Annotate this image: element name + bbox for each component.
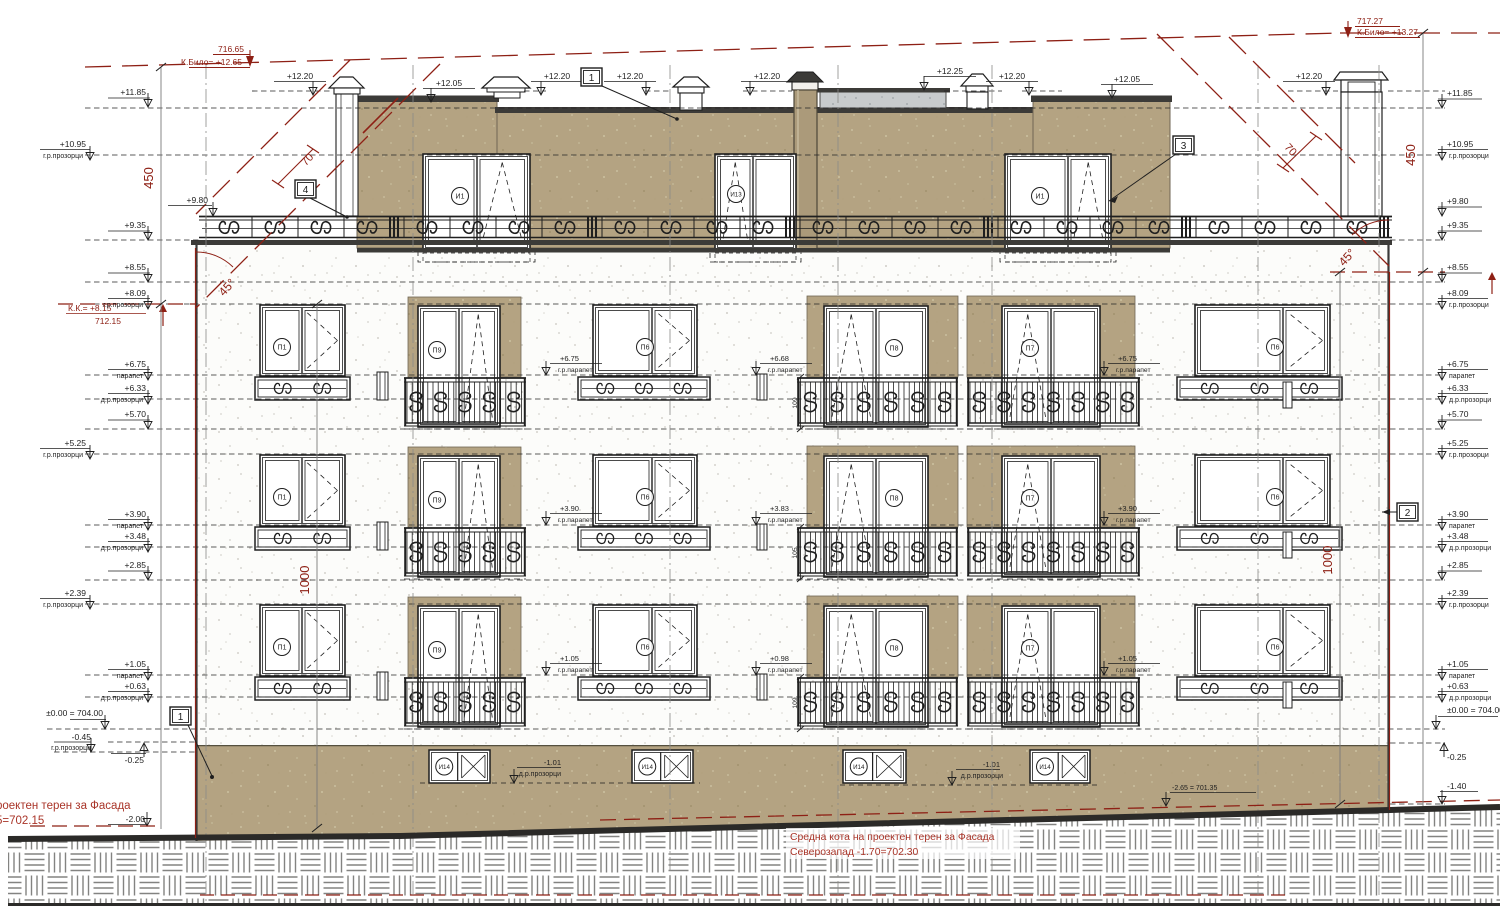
svg-text:П7: П7 xyxy=(1026,345,1035,352)
svg-text:г.р.прозорци: г.р.прозорци xyxy=(51,745,91,752)
svg-text:П1: П1 xyxy=(278,344,287,351)
svg-text:+5.25: +5.25 xyxy=(1447,438,1469,448)
svg-text:П8: П8 xyxy=(890,645,899,652)
svg-text:+6.68: +6.68 xyxy=(770,354,789,363)
svg-text:+6.75: +6.75 xyxy=(1447,359,1469,369)
svg-text:+3.90: +3.90 xyxy=(560,504,579,513)
svg-text:+0.63: +0.63 xyxy=(124,681,146,691)
svg-text:±0.00 = 704.00: ±0.00 = 704.00 xyxy=(1447,705,1500,715)
svg-text:+12.05: +12.05 xyxy=(1114,74,1141,84)
svg-text:г.р.прозорци: г.р.прозорци xyxy=(1449,302,1489,309)
svg-text:г.р.прозорци: г.р.прозорци xyxy=(43,153,83,160)
svg-text:105: 105 xyxy=(792,547,799,559)
svg-text:Средна кота на проектен терен: Средна кота на проектен терен за Фасада xyxy=(790,832,995,843)
svg-text:парапет: парапет xyxy=(1449,523,1476,530)
svg-text:+3.83: +3.83 xyxy=(770,504,789,513)
svg-text:г.р.прозорци: г.р.прозорци xyxy=(1449,153,1489,160)
svg-text:г.р.прозорци: г.р.прозорци xyxy=(43,452,83,459)
svg-text:П6: П6 xyxy=(1271,344,1280,351)
svg-text:И13: И13 xyxy=(730,191,742,198)
svg-text:1000: 1000 xyxy=(297,566,312,595)
svg-text:717.27: 717.27 xyxy=(1357,16,1383,26)
svg-text:+3.90: +3.90 xyxy=(1118,504,1137,513)
svg-text:-0.25: -0.25 xyxy=(1447,752,1467,762)
svg-text:+9.35: +9.35 xyxy=(124,220,146,230)
svg-text:+1.05: +1.05 xyxy=(1447,659,1469,669)
svg-text:И14: И14 xyxy=(642,764,654,771)
svg-text:+2.39: +2.39 xyxy=(1447,588,1469,598)
svg-text:П6: П6 xyxy=(1271,494,1280,501)
svg-text:П1: П1 xyxy=(278,494,287,501)
svg-text:-0.45: -0.45 xyxy=(72,732,92,742)
svg-text:П6: П6 xyxy=(641,344,650,351)
svg-text:+1.05: +1.05 xyxy=(124,659,146,669)
svg-text:450: 450 xyxy=(1403,144,1418,166)
svg-text:+1.05: +1.05 xyxy=(560,654,579,663)
svg-text:1: 1 xyxy=(178,712,184,723)
svg-text:г.р.прозорци: г.р.прозорци xyxy=(1449,602,1489,609)
svg-text:3: 3 xyxy=(1181,141,1187,152)
svg-text:г.р.парапет: г.р.парапет xyxy=(558,667,593,674)
svg-text:П9: П9 xyxy=(433,497,442,504)
svg-text:П8: П8 xyxy=(890,495,899,502)
svg-text:716.65: 716.65 xyxy=(218,44,244,54)
svg-text:г.р.прозорци: г.р.прозорци xyxy=(1449,452,1489,459)
svg-text:-1.01: -1.01 xyxy=(983,760,1000,769)
svg-text:±0.00 = 704.00: ±0.00 = 704.00 xyxy=(46,708,103,718)
svg-text:+8.55: +8.55 xyxy=(1447,262,1469,272)
svg-text:г.р.парапет: г.р.парапет xyxy=(768,667,803,674)
svg-text:г.р.парапет: г.р.парапет xyxy=(1116,367,1151,374)
svg-text:д.р.прозорци: д.р.прозорци xyxy=(1449,545,1491,552)
svg-text:-2.65 = 701.35: -2.65 = 701.35 xyxy=(1172,785,1217,792)
svg-text:г.р.прозорци: г.р.прозорци xyxy=(103,302,143,309)
svg-text:И1: И1 xyxy=(456,193,465,200)
svg-text:+6.75: +6.75 xyxy=(1118,354,1137,363)
svg-text:-1.40: -1.40 xyxy=(1447,781,1467,791)
svg-text:К.Било= +12.65: К.Било= +12.65 xyxy=(181,57,242,67)
svg-text:+6.75: +6.75 xyxy=(560,354,579,363)
svg-text:П9: П9 xyxy=(433,647,442,654)
svg-text:+12.20: +12.20 xyxy=(1296,71,1323,81)
svg-text:+9.80: +9.80 xyxy=(1447,196,1469,206)
svg-text:+3.90: +3.90 xyxy=(124,509,146,519)
svg-text:+11.85: +11.85 xyxy=(1447,88,1473,98)
svg-text:И1: И1 xyxy=(1036,193,1045,200)
svg-text:д.р.прозорци: д.р.прозорци xyxy=(1449,397,1491,404)
svg-text:парапет: парапет xyxy=(117,523,144,530)
svg-text:+3.90: +3.90 xyxy=(1447,509,1469,519)
svg-text:1: 1 xyxy=(589,73,595,84)
svg-text:+0.63: +0.63 xyxy=(1447,681,1469,691)
svg-text:П8: П8 xyxy=(890,345,899,352)
svg-text:+12.20: +12.20 xyxy=(617,71,644,81)
svg-text:-1.01: -1.01 xyxy=(544,758,561,767)
svg-text:5=702.15: 5=702.15 xyxy=(0,815,44,827)
svg-text:Северозапад -1.70=702.30: Северозапад -1.70=702.30 xyxy=(790,847,919,858)
svg-text:П6: П6 xyxy=(641,494,650,501)
svg-text:парапет: парапет xyxy=(1449,673,1476,680)
svg-text:д.р.прозорци: д.р.прозорци xyxy=(101,695,143,702)
svg-text:роектен терен за Фасада: роектен терен за Фасада xyxy=(0,800,131,812)
svg-text:109: 109 xyxy=(792,397,799,409)
svg-text:-2.00: -2.00 xyxy=(126,814,146,824)
svg-text:-0.25: -0.25 xyxy=(125,755,145,765)
svg-text:+8.09: +8.09 xyxy=(124,288,146,298)
svg-text:+8.55: +8.55 xyxy=(124,262,146,272)
svg-text:+6.33: +6.33 xyxy=(1447,383,1469,393)
svg-text:+12.25: +12.25 xyxy=(937,66,964,76)
svg-text:П7: П7 xyxy=(1026,495,1035,502)
svg-text:+12.20: +12.20 xyxy=(999,71,1026,81)
svg-text:парапет: парапет xyxy=(117,373,144,380)
svg-text:+0.98: +0.98 xyxy=(770,654,789,663)
svg-text:И14: И14 xyxy=(439,764,451,771)
svg-text:+5.70: +5.70 xyxy=(1447,409,1469,419)
svg-text:+2.85: +2.85 xyxy=(124,560,146,570)
svg-text:И14: И14 xyxy=(853,764,865,771)
svg-text:г.р.парапет: г.р.парапет xyxy=(768,517,803,524)
svg-text:г.р.парапет: г.р.парапет xyxy=(768,367,803,374)
svg-text:д.р.прозорци: д.р.прозорци xyxy=(519,771,561,778)
svg-text:+6.75: +6.75 xyxy=(124,359,146,369)
svg-text:г.р.парапет: г.р.парапет xyxy=(1116,667,1151,674)
svg-text:+9.80: +9.80 xyxy=(186,195,208,205)
svg-text:г.р.парапет: г.р.парапет xyxy=(1116,517,1151,524)
svg-text:+11.85: +11.85 xyxy=(120,87,146,97)
svg-text:+12.20: +12.20 xyxy=(544,71,571,81)
svg-text:П6: П6 xyxy=(641,644,650,651)
svg-text:+12.05: +12.05 xyxy=(436,78,463,88)
svg-text:г.р.парапет: г.р.парапет xyxy=(558,517,593,524)
svg-text:+9.35: +9.35 xyxy=(1447,220,1469,230)
svg-text:109: 109 xyxy=(792,697,799,709)
svg-text:+12.20: +12.20 xyxy=(287,71,314,81)
svg-text:парапет: парапет xyxy=(1449,373,1476,380)
svg-text:+10.95: +10.95 xyxy=(1447,139,1474,149)
svg-text:+2.85: +2.85 xyxy=(1447,560,1469,570)
svg-text:д.р.прозорци: д.р.прозорци xyxy=(961,773,1003,780)
svg-text:+5.70: +5.70 xyxy=(124,409,146,419)
svg-text:К.Било= +13.27: К.Било= +13.27 xyxy=(1357,27,1418,37)
svg-text:П7: П7 xyxy=(1026,645,1035,652)
svg-text:г.р.прозорци: г.р.прозорци xyxy=(43,602,83,609)
svg-text:2: 2 xyxy=(1405,508,1411,519)
svg-text:д.р.прозорци: д.р.прозорци xyxy=(101,545,143,552)
svg-text:П9: П9 xyxy=(433,347,442,354)
svg-text:+3.48: +3.48 xyxy=(124,531,146,541)
svg-text:+12.20: +12.20 xyxy=(754,71,781,81)
svg-text:450: 450 xyxy=(141,167,156,189)
svg-text:4: 4 xyxy=(303,185,309,196)
svg-text:+2.39: +2.39 xyxy=(64,588,86,598)
svg-text:1000: 1000 xyxy=(1320,546,1335,575)
svg-text:П1: П1 xyxy=(278,644,287,651)
svg-text:+5.25: +5.25 xyxy=(64,438,86,448)
svg-text:д.р.прозорци: д.р.прозорци xyxy=(1449,695,1491,702)
svg-text:+10.95: +10.95 xyxy=(60,139,87,149)
svg-text:П6: П6 xyxy=(1271,644,1280,651)
svg-text:+3.48: +3.48 xyxy=(1447,531,1469,541)
svg-text:д.р.прозорци: д.р.прозорци xyxy=(101,397,143,404)
svg-text:г.р.парапет: г.р.парапет xyxy=(558,367,593,374)
svg-text:712.15: 712.15 xyxy=(95,316,121,326)
svg-text:+8.09: +8.09 xyxy=(1447,288,1469,298)
svg-text:И14: И14 xyxy=(1039,764,1051,771)
svg-text:+1.05: +1.05 xyxy=(1118,654,1137,663)
svg-text:+6.33: +6.33 xyxy=(124,383,146,393)
svg-text:парапет: парапет xyxy=(117,673,144,680)
